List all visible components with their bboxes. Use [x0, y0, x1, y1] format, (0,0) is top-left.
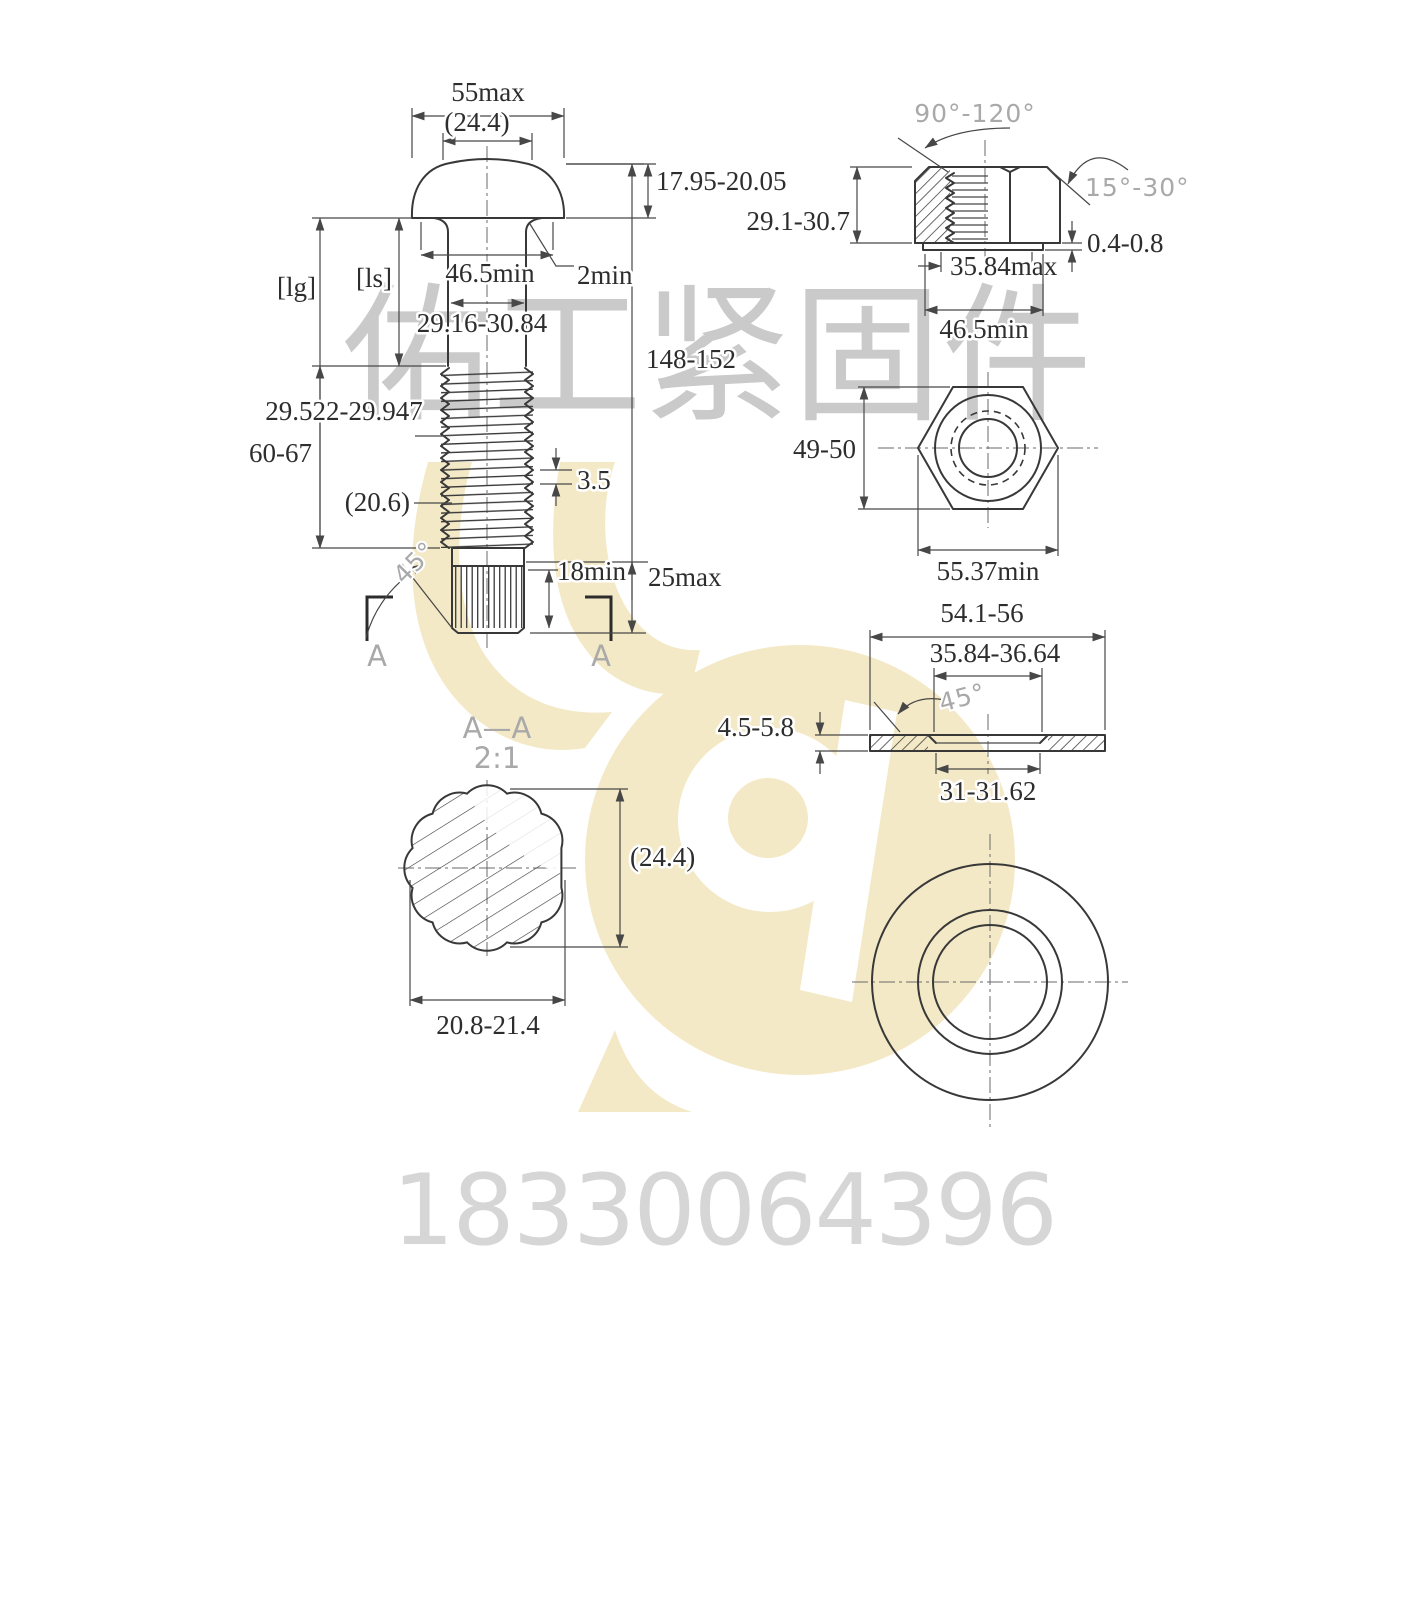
leader-countersink [925, 128, 1010, 148]
dim-washer-face-dia: 35.84-36.64 [930, 638, 1061, 668]
dim-grip-length-ref: [lg] [277, 272, 316, 302]
nut-internal-threads [952, 176, 988, 239]
dim-underhead-fillet: 2min [577, 260, 633, 290]
spline-lines [453, 566, 523, 628]
dim-overall-length: 148-152 [646, 344, 736, 374]
washer-hatch-left [870, 735, 928, 751]
dim-washer-hole-dia: 31-31.62 [940, 776, 1037, 806]
section-letter-left: A [367, 639, 387, 673]
dim-nut-height: 29.1-30.7 [747, 206, 851, 236]
dim-head-ref-dia: (24.4) [444, 107, 509, 137]
dim-head-height: 17.95-20.05 [656, 166, 787, 196]
dim-bearing-dia-min: 46.5min [445, 258, 535, 288]
dim-thread-pitch: 3.5 [577, 465, 611, 495]
dim-washer-face-height: 0.4-0.8 [1087, 228, 1164, 258]
dim-shank-dia: 29.16-30.84 [417, 308, 548, 338]
dim-washer-face-dia-max: 35.84max [950, 251, 1058, 281]
leader-fillet [530, 224, 574, 266]
dim-across-flats: 49-50 [793, 434, 856, 464]
dim-nut-chamfer-angle: 15°-30° [1085, 173, 1190, 202]
dim-section-height-ref: (24.4) [630, 842, 695, 872]
dim-countersink-angle: 90°-120° [914, 99, 1036, 128]
dim-head-width-max: 55max [451, 77, 525, 107]
dim-thread-dia: 29.522-29.947 [265, 396, 423, 426]
section-cut-left [367, 597, 393, 641]
nut-section-hatch [915, 167, 950, 243]
dim-runout-ref: (20.6) [345, 487, 410, 517]
washer-chamfer-right [1040, 735, 1048, 743]
dim-spline-dia: 20.8-21.4 [436, 1010, 540, 1040]
section-scale: 2:1 [474, 741, 521, 775]
logo-dot [728, 778, 808, 858]
dim-washer-thickness: 4.5-5.8 [718, 712, 795, 742]
dim-washer-outer-dia: 54.1-56 [940, 598, 1023, 628]
dim-across-corners-min: 55.37min [937, 556, 1040, 586]
dim-shank-length-ref: [ls] [356, 263, 392, 293]
washer-hatch-right [1048, 735, 1105, 751]
bolt-head-outline [412, 159, 564, 218]
logo-tail [578, 1030, 692, 1112]
thread-crest-lines [441, 368, 533, 548]
engineering-drawing: 佑工紧固件 18330064396 A A [0, 0, 1416, 1600]
section-letter-right: A [591, 639, 611, 673]
dim-point-length-max: 25max [648, 562, 722, 592]
chamfer-extension-nut [1049, 169, 1090, 205]
dim-spline-length-min: 18min [557, 556, 627, 586]
dim-thread-length: 60-67 [249, 438, 312, 468]
dim-nut-bearing-dia-min: 46.5min [939, 314, 1029, 344]
phone-watermark-text: 18330064396 [392, 1154, 1056, 1268]
drawing-canvas: 佑工紧固件 18330064396 A A [0, 0, 1416, 1600]
dim-washer-chamfer-angle: 45° [936, 677, 989, 717]
section-title: A—A [463, 711, 532, 745]
